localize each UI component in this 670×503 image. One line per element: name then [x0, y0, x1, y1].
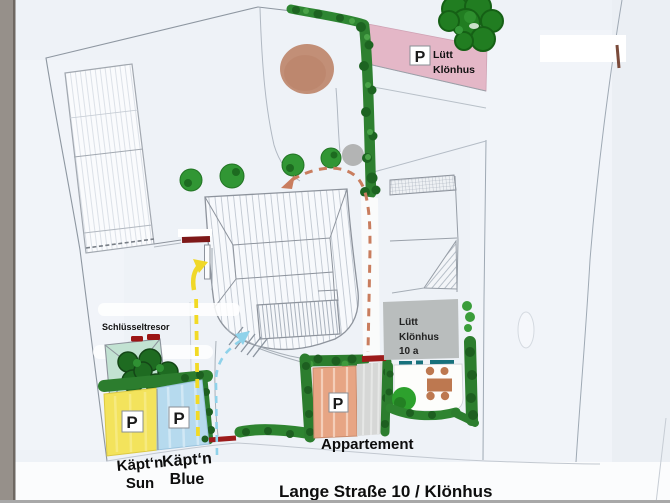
svg-text:Schlüsseltresor: Schlüsseltresor: [102, 322, 170, 332]
svg-text:Klönhus: Klönhus: [399, 332, 439, 343]
svg-text:Lütt: Lütt: [433, 49, 453, 61]
svg-text:Klönhus: Klönhus: [433, 64, 475, 76]
svg-text:Lütt: Lütt: [399, 317, 419, 328]
svg-text:Lange Straße 10 / Klönhus: Lange Straße 10 / Klönhus: [279, 482, 493, 501]
svg-text:Sun: Sun: [126, 475, 154, 492]
svg-text:Blue: Blue: [170, 471, 205, 488]
svg-text:P: P: [333, 396, 344, 413]
svg-text:P: P: [126, 413, 137, 432]
svg-text:P: P: [173, 409, 184, 428]
svg-text:P: P: [415, 49, 426, 66]
svg-text:10 a: 10 a: [399, 346, 419, 357]
svg-text:Käpt‘n: Käpt‘n: [162, 450, 213, 470]
svg-text:Appartement: Appartement: [321, 436, 414, 453]
